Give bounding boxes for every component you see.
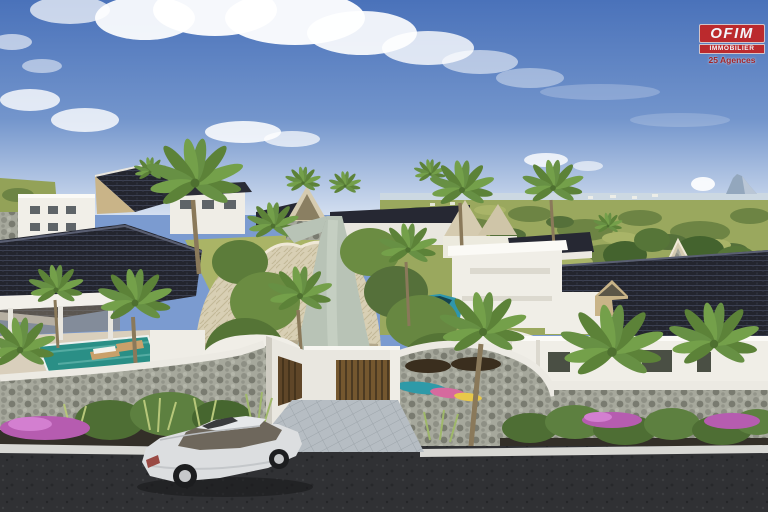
scene-illustration	[0, 0, 768, 512]
planter	[405, 359, 451, 373]
horizon-cloud	[691, 177, 715, 191]
ofim-logo-subtitle: IMMOBILIER	[699, 44, 765, 54]
ofim-logo-brand: OFIM	[699, 24, 765, 43]
ofim-logo: OFIM IMMOBILIER 25 Agences	[699, 24, 765, 66]
render-image: OFIM IMMOBILIER 25 Agences	[0, 0, 768, 512]
pink-flowers	[704, 413, 760, 429]
gate-pillar	[390, 350, 400, 408]
ofim-logo-tagline: 25 Agences	[699, 55, 765, 66]
wooden-gate-left	[278, 356, 302, 406]
